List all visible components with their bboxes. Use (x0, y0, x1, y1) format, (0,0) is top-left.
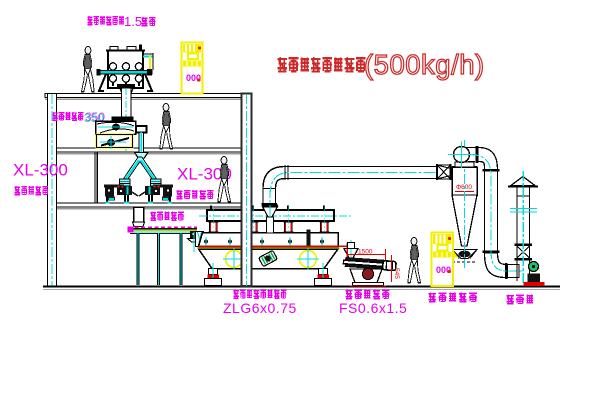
svg-text:545: 545 (393, 268, 400, 279)
svg-text:XL-300: XL-300 (13, 161, 68, 180)
svg-text:1500: 1500 (358, 249, 373, 256)
svg-text:ZLG6x0.75: ZLG6x0.75 (223, 300, 297, 316)
svg-text:(500kg/h): (500kg/h) (364, 49, 485, 80)
svg-text:1.5: 1.5 (124, 14, 142, 29)
svg-text:FS0.6x1.5: FS0.6x1.5 (339, 300, 407, 316)
